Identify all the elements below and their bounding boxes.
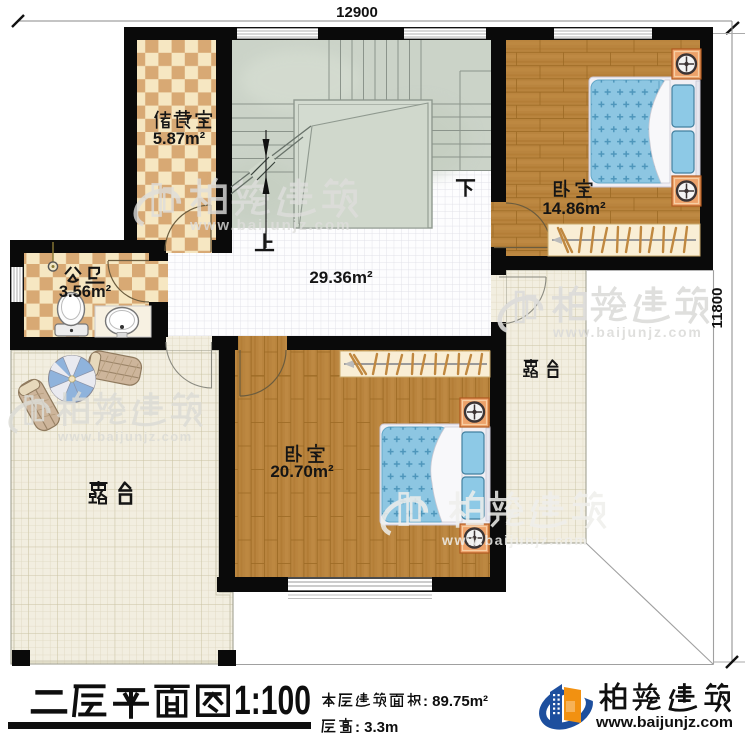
svg-text:: 89.75m²: : 89.75m² <box>423 693 488 710</box>
svg-text:14.86m²: 14.86m² <box>542 199 606 218</box>
svg-text:www.baijunjz.com: www.baijunjz.com <box>441 532 588 548</box>
svg-text:5.87m²: 5.87m² <box>153 130 206 148</box>
svg-text:www.baijunjz.com: www.baijunjz.com <box>595 715 733 731</box>
svg-text:12900: 12900 <box>336 4 378 21</box>
svg-text:www.baijunjz.com: www.baijunjz.com <box>189 217 351 234</box>
svg-text:www.baijunjz.com: www.baijunjz.com <box>57 429 193 444</box>
svg-text:1:100: 1:100 <box>234 677 311 723</box>
svg-text:11800: 11800 <box>709 288 726 329</box>
svg-text:20.70m²: 20.70m² <box>270 462 334 481</box>
svg-text:29.36m²: 29.36m² <box>309 268 373 287</box>
svg-text:3.56m²: 3.56m² <box>59 283 112 301</box>
svg-text:www.baijunjz.com: www.baijunjz.com <box>552 324 703 340</box>
svg-text:: 3.3m: : 3.3m <box>355 719 398 736</box>
